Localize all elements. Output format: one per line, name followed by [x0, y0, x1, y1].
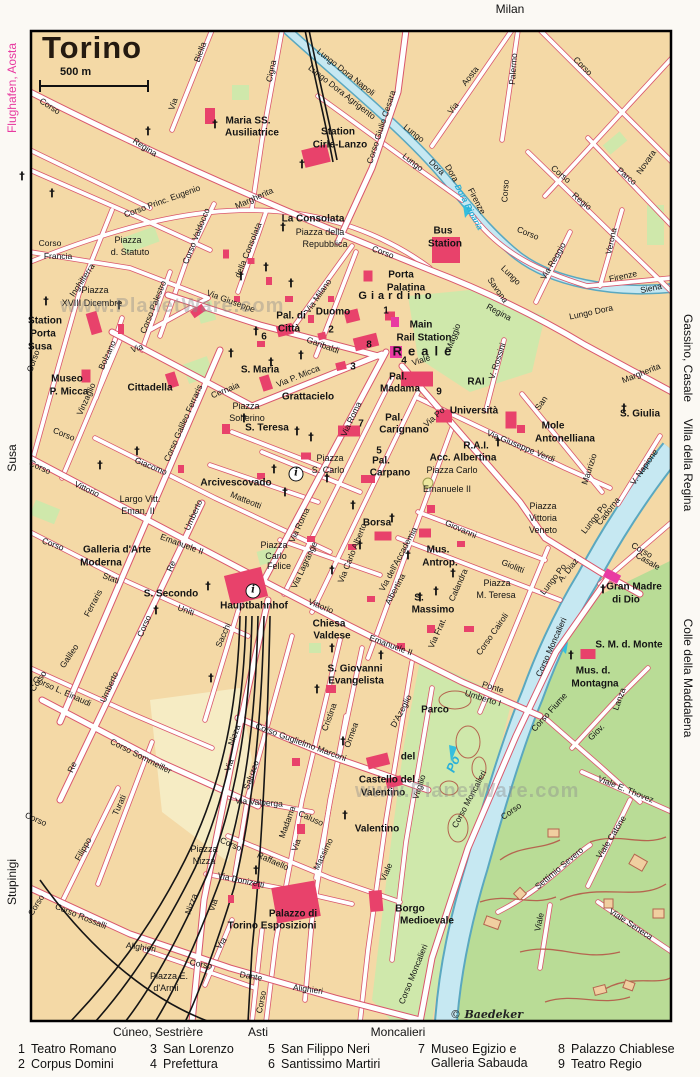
map-label: Montagna [571, 679, 618, 690]
baedeker-credit: © Baedeker [450, 1008, 523, 1021]
map-label: S. [414, 593, 423, 604]
map-label: Via P. Micca [275, 363, 321, 390]
map-label: Dora [443, 163, 461, 184]
map-label: Sacchi [213, 621, 233, 648]
landmark-block [266, 277, 272, 285]
map-label: V. Napione [628, 447, 660, 487]
map-label: Massimo [311, 837, 335, 872]
map-label: Evangelista [328, 676, 384, 687]
church-cross-icon: † [49, 187, 55, 200]
landmark-block [292, 758, 300, 766]
map-label: Umberto [98, 670, 120, 704]
map-label: Piazza [260, 540, 287, 550]
map-label: Corso [26, 893, 47, 918]
map-label: La Consolata [282, 214, 345, 225]
church-cross-icon: † [212, 118, 218, 131]
church-cross-icon: † [288, 277, 294, 290]
map-title: Torino [42, 30, 142, 66]
edge-label-villa-della-regina: Villa della Regina [681, 419, 695, 512]
map-label: Piazza E. [150, 971, 188, 981]
map-label: Regio [570, 190, 593, 212]
map-label: Cirle-Lanzo [313, 140, 367, 151]
map-label: Piazza [81, 285, 108, 295]
map-label: Città [278, 324, 300, 335]
map-label: Parco [421, 705, 449, 716]
map-label: Via [213, 935, 228, 951]
map-label: Lungo [499, 263, 523, 287]
map-label: S. Giovanni [327, 664, 382, 675]
map-label: Giovanni [444, 518, 479, 541]
map-label: Margherita [233, 185, 274, 211]
map-label: Piazza [114, 235, 141, 245]
tourist-info-icon: i [246, 584, 261, 599]
edge-label-milan: Milan [496, 2, 525, 16]
legend-item: 5San Filippo Neri [268, 1042, 380, 1056]
legend-item: 2Corpus Domini [18, 1057, 116, 1071]
map-label: Giov. [586, 722, 607, 743]
map-label: Vittorio [73, 479, 101, 499]
map-label: Borgo [395, 904, 424, 915]
map-label: Lungo Dora [568, 302, 614, 321]
map-label: Grattacielo [282, 392, 334, 403]
map-label: Cittadella [127, 383, 172, 394]
map-label: Chiesa [313, 619, 346, 630]
map-label: Viale Catone [594, 814, 628, 860]
map-label: Palermo [507, 53, 519, 85]
map-label: Dante [239, 969, 263, 983]
landmark-block [301, 453, 311, 460]
map-label: Mus. [427, 545, 450, 556]
church-cross-icon: † [350, 499, 356, 512]
map-label: Viale E. Thovez [597, 773, 656, 804]
map-label: Via [445, 100, 460, 116]
landmark-block [228, 895, 234, 903]
edge-label-cuneo-sestriere: Cúneo, Sestrière [113, 1025, 203, 1039]
landmark-block [581, 649, 596, 659]
map-label: Gran Madre [606, 582, 662, 593]
map-label: Giardino [358, 290, 435, 302]
map-label: Station [428, 239, 462, 250]
map-label: Carignano [379, 425, 428, 436]
church-cross-icon: † [263, 261, 269, 274]
map-label: Emanuele II [159, 532, 205, 557]
edge-label-gassino-casale: Gassino, Casale [681, 314, 695, 402]
landmark-block [222, 424, 230, 434]
map-label: Vittoria [529, 513, 557, 523]
legend-number-marker: 9 [436, 387, 442, 398]
map-label: Uniti [176, 602, 195, 617]
map-label: Repubblica [302, 239, 347, 249]
map-label: Duomo [316, 307, 350, 318]
map-label: Palazzo di [269, 909, 317, 920]
map-label: Piazza [316, 453, 343, 463]
church-cross-icon: † [43, 295, 49, 308]
map-label: Acc. Albertina [430, 453, 497, 464]
map-label: S. Teresa [245, 423, 289, 434]
edge-label-asti: Asti [248, 1025, 268, 1039]
landmark-block [375, 532, 392, 541]
map-label: Firenze [608, 268, 638, 284]
landmark-block [328, 296, 334, 302]
map-label: Cigna [264, 59, 278, 83]
map-label: Piazza Carlo [426, 465, 477, 475]
landmark-block [366, 753, 390, 770]
map-label: Maurizio [579, 452, 598, 486]
map-label: Lungo [402, 122, 427, 144]
map-label: Alighieri [125, 940, 156, 954]
map-label: Via Valperga [235, 795, 283, 808]
map-label: Corso [254, 990, 268, 1014]
legend-item: 7Museo Egizio e Galleria Sabauda [418, 1042, 528, 1070]
church-cross-icon: † [271, 463, 277, 476]
landmark-block [364, 271, 373, 282]
legend-item: 9Teatro Regio [558, 1057, 675, 1071]
map-label: Novara [634, 148, 658, 176]
landmark-block [285, 296, 293, 302]
landmark-block [178, 465, 184, 473]
map-label: Corso Princ. Eugenio [123, 183, 202, 220]
map-label: d'Armi [153, 983, 178, 993]
map-label: Regina [485, 301, 513, 322]
map-label: Carlo [265, 551, 287, 561]
map-label: Medioevale [400, 916, 454, 927]
edge-label-susa: Susa [5, 444, 19, 471]
map-label: Hauptbahnhof [220, 601, 288, 612]
map-label: Largo Vitt. [120, 494, 161, 504]
map-label: Re [164, 559, 178, 573]
landmark-block [82, 370, 91, 383]
map-label: Valentino [355, 824, 399, 835]
map-label: Corso [28, 458, 53, 477]
map-label: Po [443, 753, 463, 774]
legend-number-marker: 8 [366, 340, 372, 351]
map-label: Stati [101, 570, 120, 585]
edge-label-colle-della-maddalena: Colle della Maddalena [681, 619, 695, 738]
map-label: Valdese [313, 631, 350, 642]
map-label: Via Reggio [538, 241, 567, 282]
map-label: Corso [516, 224, 541, 242]
map-label: Corso Giulio Cesara [364, 89, 397, 165]
map-label: Vittorio [307, 596, 335, 615]
map-label: R.A.I. [463, 441, 489, 452]
edge-label-moncalieri: Moncalieri [371, 1025, 426, 1039]
church-cross-icon: † [308, 431, 314, 444]
map-label: Maggio [444, 322, 463, 352]
legend-number-marker: 4 [401, 356, 407, 367]
map-label: Piazza [232, 401, 259, 411]
map-label: Piazza [483, 578, 510, 588]
map-label: Corso [38, 96, 62, 117]
church-cross-icon: † [205, 580, 211, 593]
church-cross-icon: † [342, 809, 348, 822]
map-label: Nizza [226, 723, 243, 746]
landmark-block [517, 425, 525, 433]
map-legend: 1Teatro Romano 2Corpus Domini 3San Loren… [0, 1042, 700, 1077]
map-label: Corso Rossalli [54, 901, 109, 931]
legend-number-marker: 7 [358, 419, 364, 430]
map-label: Mole [542, 421, 565, 432]
church-cross-icon: † [600, 583, 606, 596]
map-label: Corso [39, 238, 62, 248]
map-label: Porta [388, 270, 414, 281]
map-label: Giolitti [500, 557, 526, 575]
map-label: Alighieri [292, 982, 323, 996]
map-label: Corso Guglielmo Marconi [254, 721, 348, 763]
map-label: Via [222, 758, 236, 773]
map-label: RAI [467, 377, 484, 388]
landmark-block [297, 824, 305, 834]
map-label: Solferino [229, 413, 265, 423]
map-label: Via [130, 341, 145, 354]
landmark-block [118, 324, 124, 334]
scale-label: 500 m [60, 66, 91, 78]
map-label: Matteotti [229, 489, 263, 510]
map-label: di Dio [612, 595, 640, 606]
map-label: Via Frat. [426, 616, 448, 649]
map-label: Corso [371, 243, 396, 260]
map-label: Corso Cairoli [474, 611, 510, 657]
landmark-block [367, 596, 375, 602]
map-label: Verona [603, 227, 618, 255]
credit-name: Baedeker [465, 1008, 524, 1021]
map-label: Piazza [190, 844, 217, 854]
landmark-block [223, 250, 229, 259]
map-label: Corso L. Einaudi [31, 674, 92, 709]
landmark-block [427, 505, 435, 513]
map-label: S. M. d. Monte [595, 640, 662, 651]
map-label: Corso [24, 810, 49, 828]
edge-label-stupinigi: Stupinigi [5, 859, 19, 905]
edge-label-flughafen-aosta: Flughafen, Aosta [5, 43, 19, 133]
map-label: Siena [639, 281, 662, 295]
map-label: Corso [189, 957, 213, 971]
map-label: Maria SS. [225, 116, 270, 127]
map-label: del [401, 752, 415, 763]
map-label: Pal. [389, 372, 407, 383]
landmark-block [259, 374, 273, 391]
map-label: Turati [110, 793, 128, 817]
map-label: Ausiliatrice [225, 128, 279, 139]
church-cross-icon: † [299, 158, 305, 171]
map-label: Lanza [610, 686, 627, 711]
church-cross-icon: † [253, 864, 259, 877]
map-label: Regina [131, 135, 159, 158]
map-label: Umberto [182, 498, 204, 532]
map-label: S. Maria [241, 365, 279, 376]
map-label: Madama [380, 384, 420, 395]
copyright-icon: © [450, 1008, 461, 1021]
legend-number-marker: 3 [350, 362, 356, 373]
map-label: Station [28, 316, 62, 327]
map-label: Saluzzo [241, 759, 261, 791]
legend-number-marker: 6 [261, 332, 267, 343]
map-label: Mus. d. [576, 666, 610, 677]
landmark-block [369, 890, 384, 912]
church-cross-icon: † [97, 459, 103, 472]
church-cross-icon: † [19, 170, 25, 183]
torino-city-map: ††††††††††††††††††††††††††††††††††††††††… [0, 0, 700, 1077]
map-label: Corso Valdocco [180, 207, 212, 266]
landmark-block [506, 412, 517, 429]
church-cross-icon: † [253, 325, 259, 338]
landmark-block [457, 541, 465, 547]
map-label: Settimio Severo [533, 845, 585, 891]
map-label: Madama [277, 805, 298, 840]
landmark-block [308, 315, 314, 323]
map-label: Corso [41, 535, 66, 552]
map-label: S. Secondo [144, 589, 198, 600]
church-cross-icon: † [145, 125, 151, 138]
map-label: Carpano [370, 468, 411, 479]
map-label: Corso Moncalieri [533, 616, 568, 678]
map-label: Filippo [72, 836, 93, 863]
map-label: Torino Esposizioni [228, 921, 317, 932]
map-labels-layer: ††††††††††††††††††††††††††††††††††††††††… [0, 0, 700, 1077]
map-label: Università [450, 406, 498, 417]
map-label: Bolzano [96, 339, 118, 371]
map-label: Via Carlo Alberto [335, 522, 368, 585]
landmark-block-magenta [391, 317, 399, 327]
map-label: della Consolata [232, 221, 263, 279]
church-cross-icon: † [314, 683, 320, 696]
map-label: d. Statuto [111, 247, 150, 257]
map-label: Nizza [183, 892, 200, 915]
map-label: Antrop. [422, 558, 458, 569]
legend-item: 4Prefettura [150, 1057, 234, 1071]
map-label: Piazza [529, 501, 556, 511]
map-label: Corso [24, 349, 41, 374]
map-label: Biella [192, 41, 209, 64]
map-label: Corso [499, 800, 523, 821]
church-cross-icon: † [329, 564, 335, 577]
map-label: Rail Station [396, 333, 451, 344]
map-label: Corso [571, 54, 594, 77]
map-label: Arcivescovado [200, 478, 271, 489]
watermark: www.PlanetWare.com [60, 295, 284, 318]
map-label: Corso [219, 835, 244, 853]
map-label: Corso [549, 163, 573, 185]
map-label: D'Azeglio [388, 693, 414, 729]
map-label: Via [289, 838, 303, 853]
map-label: Nizza [193, 856, 216, 866]
map-label: Viale Seneca [607, 906, 654, 942]
map-label: Cristina [319, 702, 338, 732]
map-label: Viale [378, 861, 395, 882]
map-label: V. Rossini [486, 342, 507, 381]
map-label: Lungo [401, 151, 426, 173]
map-label: Piazza della [296, 227, 345, 237]
map-label: S. Carlo [312, 465, 345, 475]
map-label: Via Lagrange [289, 540, 319, 590]
map-label: Museo [51, 374, 83, 385]
landmark-block [464, 626, 474, 632]
church-cross-icon: † [294, 425, 300, 438]
legend-item: 3San Lorenzo [150, 1042, 234, 1056]
church-cross-icon: † [568, 649, 574, 662]
church-cross-icon: † [298, 349, 304, 362]
map-label: Moderna [80, 558, 122, 569]
legend-item: 8Palazzo Chiablese [558, 1042, 675, 1056]
map-label: Pal. [372, 456, 390, 467]
map-label: Cernaia [209, 380, 240, 400]
church-cross-icon: † [208, 672, 214, 685]
map-label: Main [410, 320, 433, 331]
map-label: Corso Moncalieri [396, 943, 429, 1006]
map-label: Porta [30, 329, 56, 340]
map-label: Emanuele II [423, 484, 471, 494]
church-cross-icon: † [153, 604, 159, 617]
church-cross-icon: † [228, 347, 234, 360]
legend-item: 6Santissimo Martiri [268, 1057, 380, 1071]
tourist-info-icon: i [289, 467, 304, 482]
map-label: Corso [52, 425, 77, 443]
map-label: Corso Fiume [529, 691, 569, 734]
landmark-block [419, 529, 431, 538]
legend-number-marker: 1 [383, 306, 389, 317]
map-label: Via [166, 97, 180, 112]
map-label: Emanuele II [368, 633, 414, 658]
legend-item: 1Teatro Romano [18, 1042, 116, 1056]
map-label: Galleria d'Arte [83, 545, 151, 556]
map-label: Massimo [412, 605, 455, 616]
church-cross-icon: † [282, 486, 288, 499]
map-label: Margherita [620, 361, 661, 385]
map-label: Station [321, 127, 355, 138]
map-label: S. Giulia [620, 409, 660, 420]
map-label: Corso Galileo Ferraris [162, 383, 205, 463]
map-label: Ormea [342, 721, 360, 749]
legend-number-marker: 5 [376, 446, 382, 457]
map-label: Pal. [385, 413, 403, 424]
map-label: Veneto [529, 525, 557, 535]
map-label: Corso [135, 614, 153, 639]
map-label: Francia [44, 251, 72, 261]
map-label: Corso Sommeiller [109, 736, 174, 776]
map-label: Via [206, 898, 220, 913]
map-label: Antonelliana [535, 434, 595, 445]
map-label: Bus [434, 226, 453, 237]
map-label: Raffaello [256, 850, 291, 873]
map-label: Eman. II [121, 506, 155, 516]
map-label: Corso [499, 179, 511, 202]
map-label: Re [65, 760, 79, 774]
map-label: Felice [267, 561, 291, 571]
legend-number-marker: 2 [328, 325, 334, 336]
map-label: San [533, 394, 550, 412]
map-label: Ferraris [82, 588, 105, 619]
map-label: Galileo [57, 642, 80, 670]
church-cross-icon: † [433, 585, 439, 598]
church-cross-icon: † [378, 649, 384, 662]
church-cross-icon: † [329, 642, 335, 655]
landmark-block [335, 361, 347, 371]
watermark: www.PlanetWare.com [355, 780, 579, 803]
map-label: Aosta [459, 64, 480, 87]
map-label: Viale [532, 912, 546, 932]
map-label: M. Teresa [476, 590, 515, 600]
